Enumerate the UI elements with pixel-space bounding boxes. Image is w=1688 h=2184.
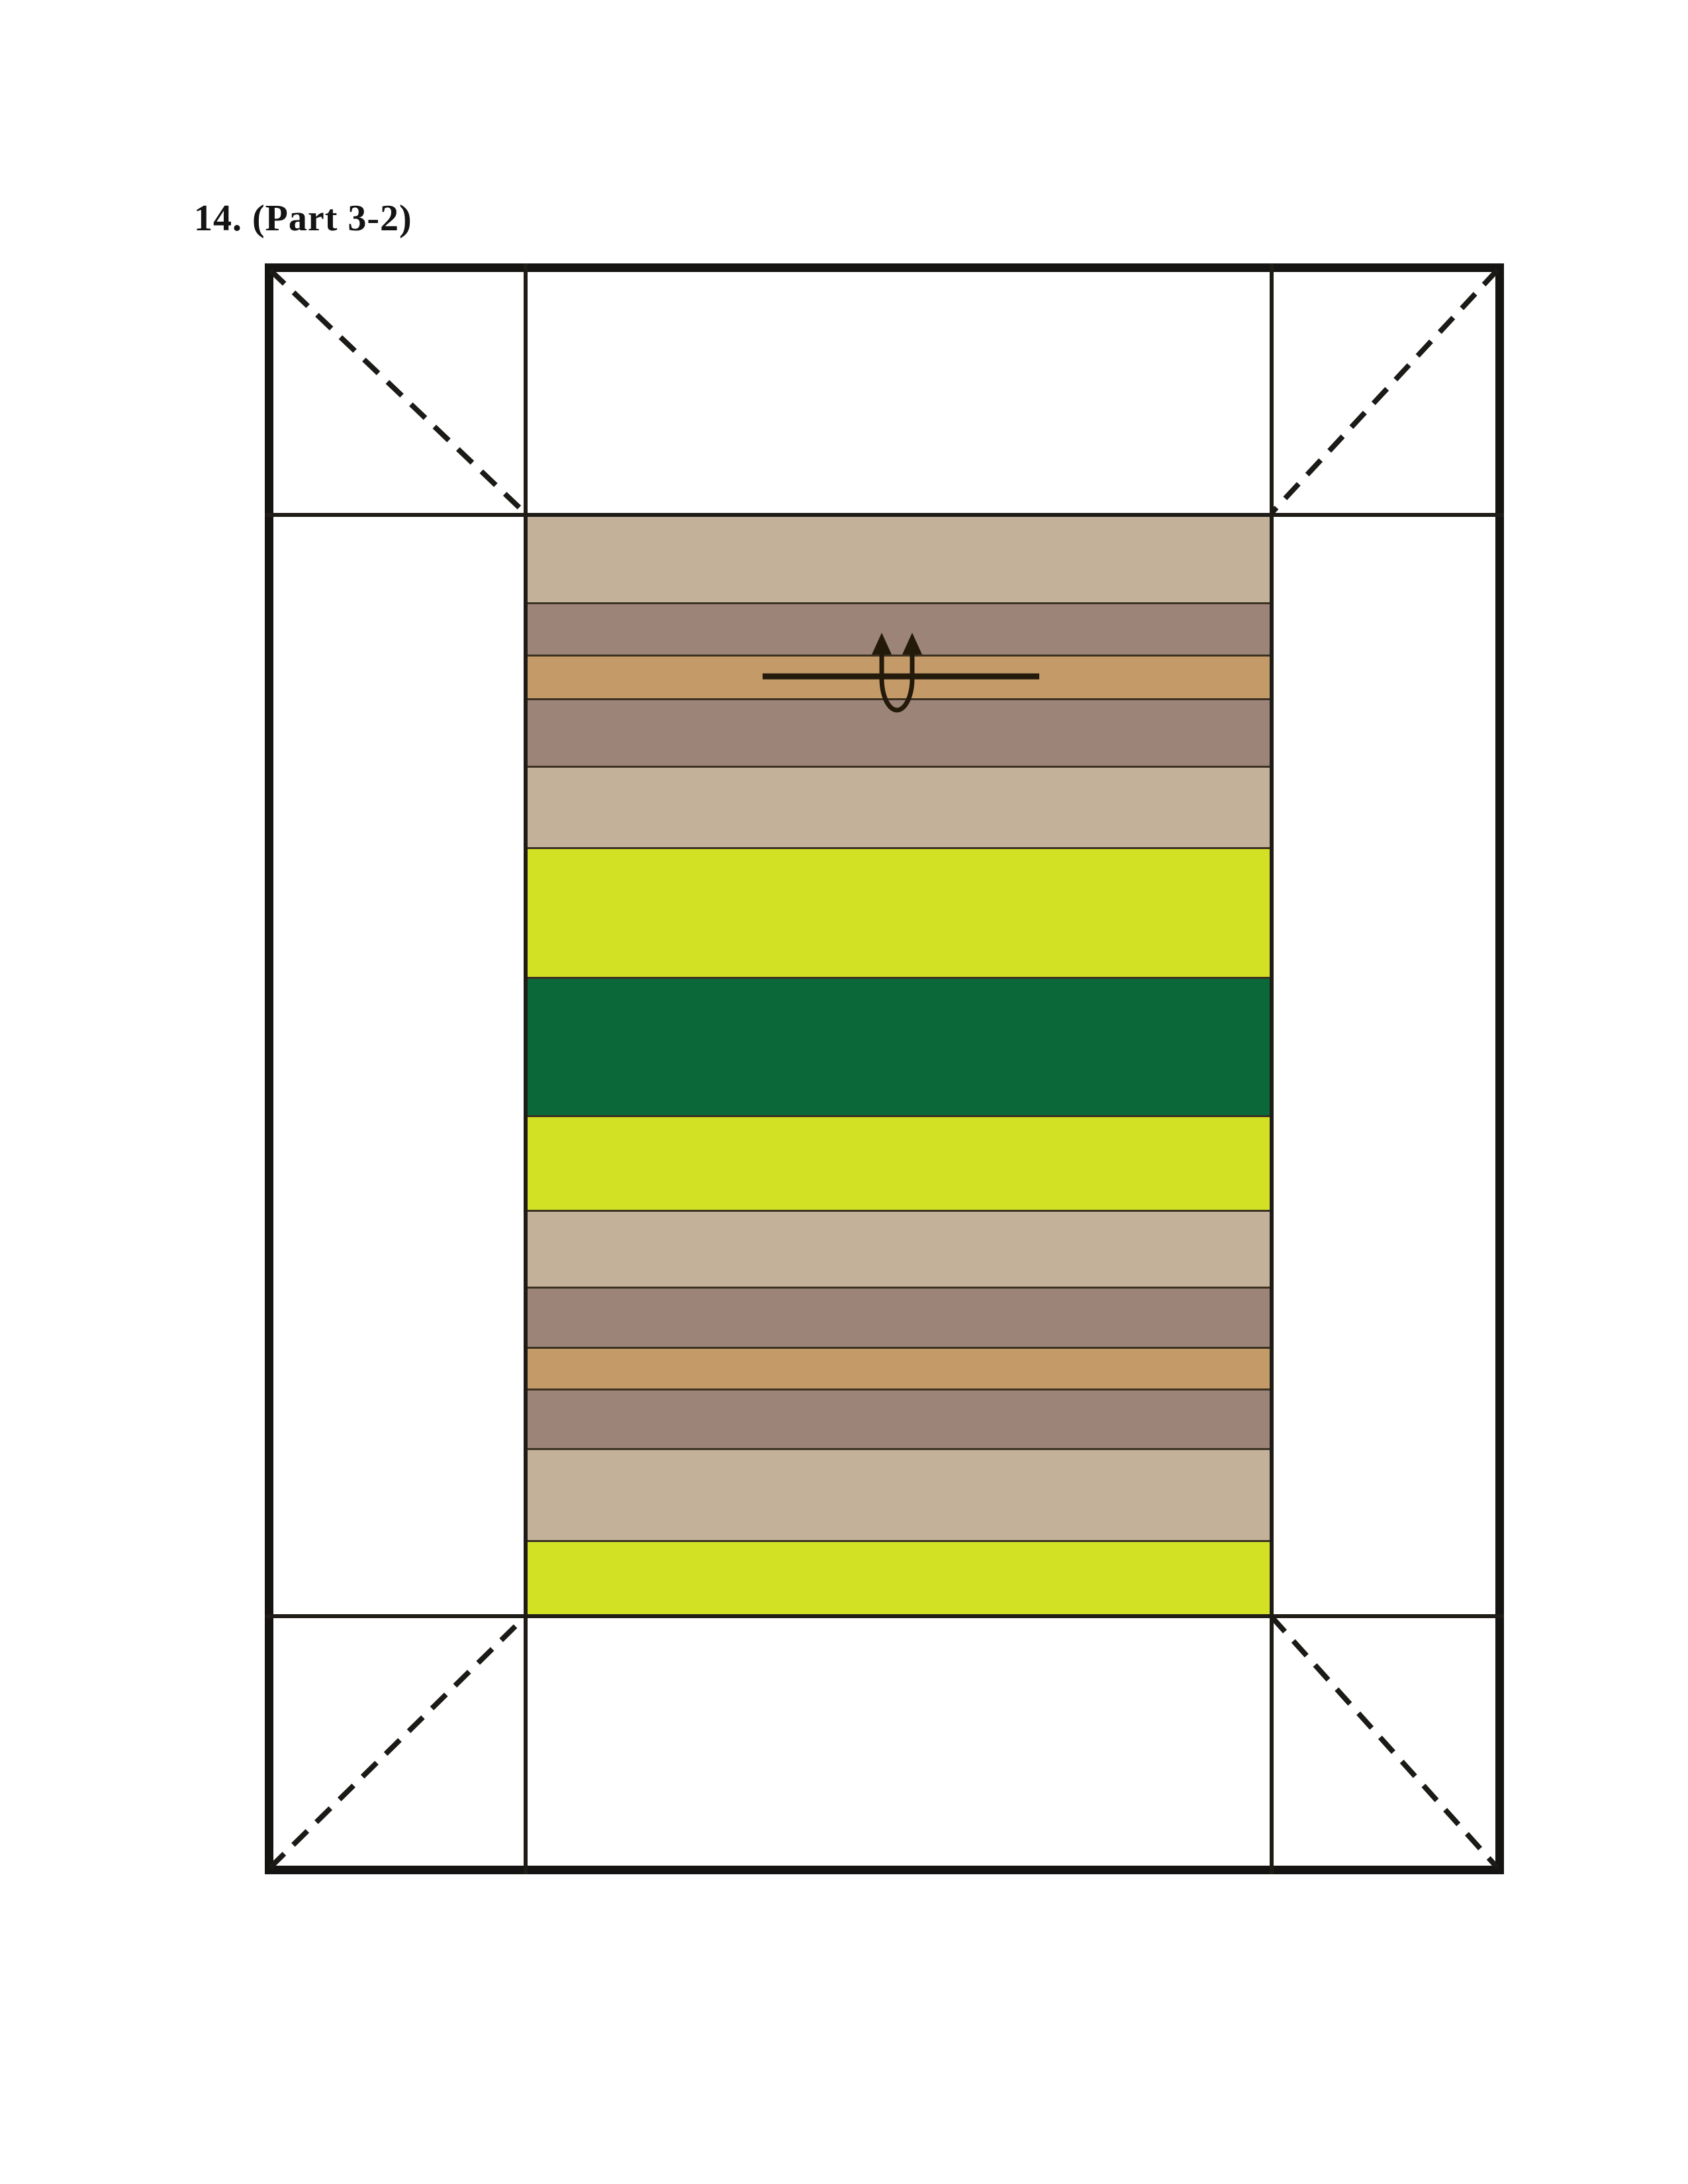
instruction-page: 14. (Part 3-2) xyxy=(0,0,1688,2184)
stripe-panel xyxy=(526,515,1272,1616)
stripe-mauve xyxy=(526,1388,1272,1448)
stripe-green xyxy=(526,977,1272,1115)
stripe-orange xyxy=(526,655,1272,698)
seam-line-horizontal-top xyxy=(265,513,1504,517)
stripe-mauve xyxy=(526,1287,1272,1347)
corner-square-bottom-right xyxy=(1275,1618,1495,1866)
stripe-orange xyxy=(526,1347,1272,1388)
seam-line-vertical-left xyxy=(524,263,528,1874)
stripe-tan xyxy=(526,1210,1272,1287)
stripe-mauve xyxy=(526,698,1272,766)
stripe-mauve xyxy=(526,602,1272,655)
stripe-tan xyxy=(526,1448,1272,1540)
stripe-tan xyxy=(526,515,1272,602)
stripe-chartreuse xyxy=(526,1540,1272,1616)
stripe-tan xyxy=(526,766,1272,847)
seam-line-horizontal-bottom xyxy=(265,1614,1504,1618)
stripe-chartreuse xyxy=(526,1115,1272,1210)
step-title: 14. (Part 3-2) xyxy=(194,197,412,240)
seam-line-vertical-right xyxy=(1270,263,1274,1874)
corner-square-top-left xyxy=(273,272,524,513)
corner-square-bottom-left xyxy=(273,1618,524,1866)
corner-square-top-right xyxy=(1275,272,1495,513)
stripe-chartreuse xyxy=(526,847,1272,977)
